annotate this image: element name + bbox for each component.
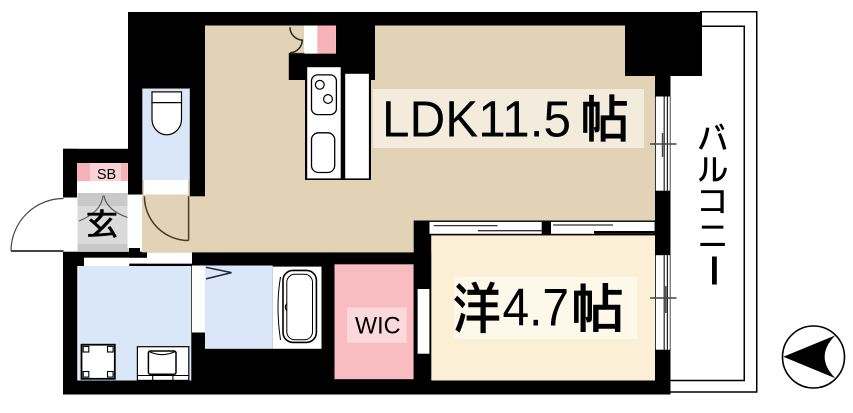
svg-text:WIC: WIC (355, 313, 401, 340)
svg-text:4.7: 4.7 (503, 278, 570, 337)
svg-text:SB: SB (97, 167, 116, 183)
svg-text:LDK11.5: LDK11.5 (382, 91, 571, 148)
